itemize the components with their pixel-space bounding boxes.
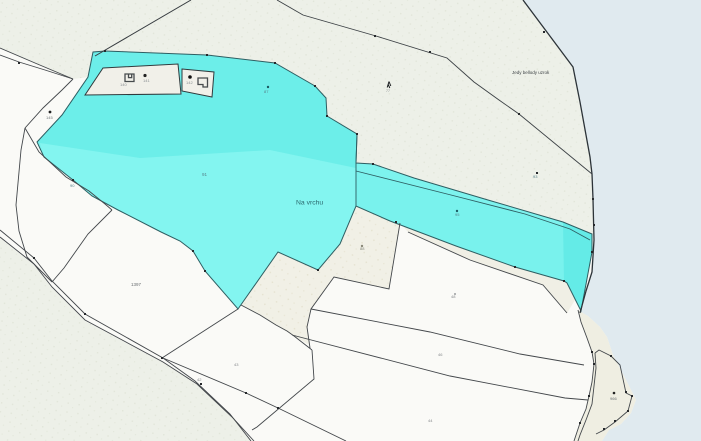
svg-text:90: 90 — [70, 183, 75, 188]
svg-text:142: 142 — [186, 80, 193, 85]
svg-text:966: 966 — [610, 396, 617, 401]
svg-text:95: 95 — [455, 212, 460, 217]
svg-text:141: 141 — [143, 78, 150, 83]
svg-text:43: 43 — [234, 362, 239, 367]
svg-text:140: 140 — [120, 82, 127, 87]
svg-text:44: 44 — [428, 418, 433, 423]
svg-text:87: 87 — [264, 89, 269, 94]
svg-text:Na vrchu: Na vrchu — [296, 200, 323, 207]
svg-text:1397: 1397 — [131, 282, 142, 287]
svg-text:93: 93 — [533, 174, 538, 179]
svg-text:77: 77 — [386, 89, 390, 93]
svg-text:91: 91 — [202, 172, 208, 177]
svg-text:Jedy bellody uzrok: Jedy bellody uzrok — [512, 70, 550, 75]
svg-text:145: 145 — [46, 115, 53, 120]
svg-text:42: 42 — [197, 377, 202, 382]
svg-text:46: 46 — [438, 352, 443, 357]
